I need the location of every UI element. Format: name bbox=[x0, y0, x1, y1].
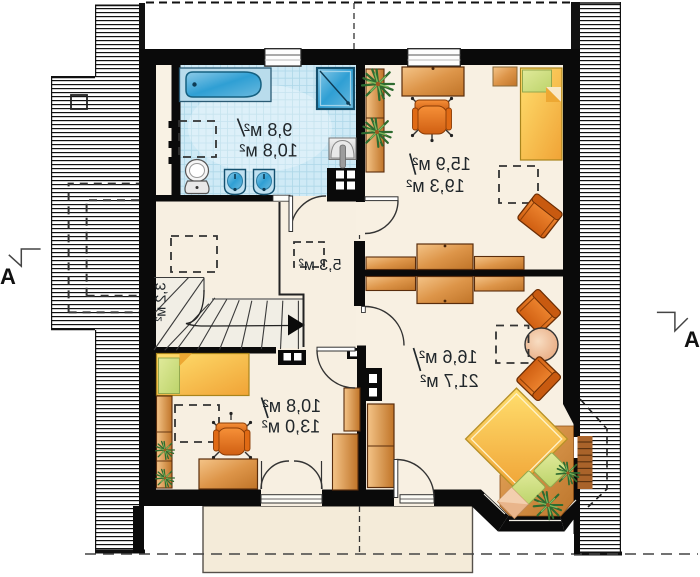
svg-text:10,8 м²: 10,8 м² bbox=[263, 396, 321, 416]
svg-text:21,7 м²: 21,7 м² bbox=[420, 371, 478, 391]
svg-text:19,3 м²: 19,3 м² bbox=[406, 176, 464, 196]
svg-text:15,9 м²: 15,9 м² bbox=[412, 154, 470, 174]
svg-text:5,3 м²: 5,3 м² bbox=[298, 257, 342, 274]
svg-text:16,6 м²: 16,6 м² bbox=[419, 347, 477, 367]
svg-text:3,2 м²: 3,2 м² bbox=[154, 283, 170, 322]
svg-text:10,8 м²: 10,8 м² bbox=[239, 141, 297, 161]
svg-text:A: A bbox=[0, 264, 16, 289]
svg-text:13,0 м²: 13,0 м² bbox=[262, 417, 320, 437]
svg-text:A: A bbox=[684, 327, 700, 352]
svg-text:9,8 м²: 9,8 м² bbox=[244, 120, 292, 140]
